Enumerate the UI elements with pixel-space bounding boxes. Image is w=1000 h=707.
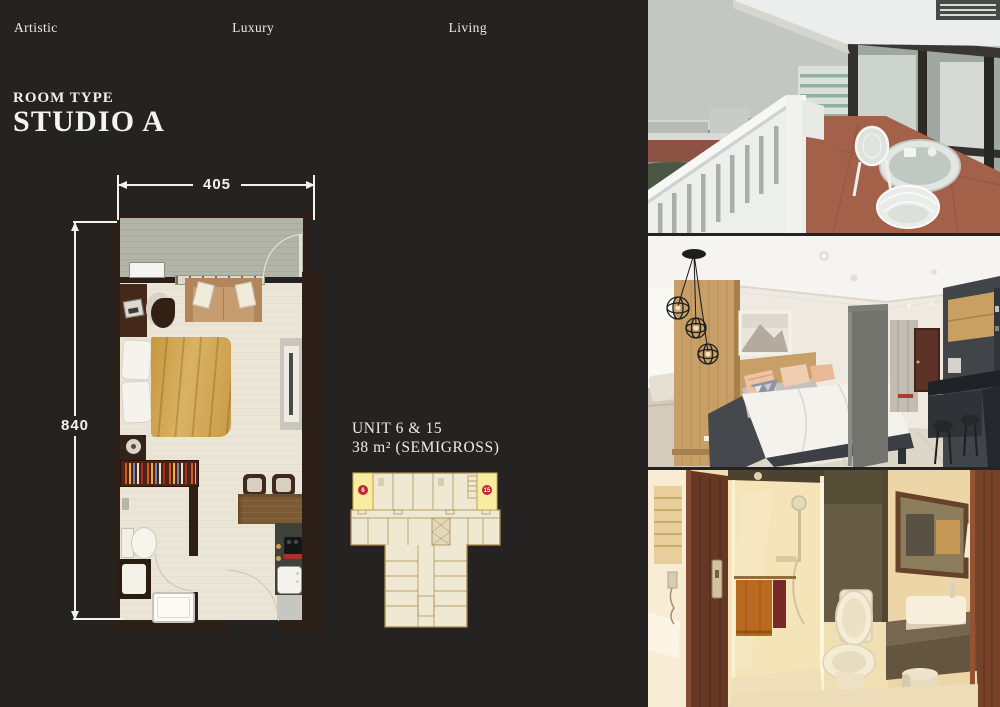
highlighted-unit-6: 6: [353, 473, 373, 510]
wardrobe-column: [848, 304, 888, 467]
wardrobe: [120, 460, 199, 487]
unit-badge: 15: [484, 488, 491, 494]
wall-bottom-right: [278, 620, 323, 632]
floor-plan: [113, 212, 323, 632]
tagline-living: Living: [449, 20, 487, 36]
photo-bathroom: [648, 470, 1000, 707]
tv-console: [280, 338, 302, 430]
unit-area: 38 m² (SEMIGROSS): [352, 438, 499, 457]
elevator-core: [432, 518, 450, 545]
wall-top: [113, 212, 317, 218]
highlighted-unit-15: 15: [477, 473, 497, 510]
wall-balcony-right: [303, 212, 310, 277]
tagline-luxury: Luxury: [232, 20, 274, 36]
door-mat: [898, 394, 913, 398]
title-block: ROOM TYPE STUDIO A: [13, 90, 165, 137]
wall-bathroom: [189, 485, 198, 556]
tagline-row: Artistic Luxury Living: [14, 20, 487, 36]
wire-chair-front: [877, 186, 939, 228]
stove: [284, 537, 302, 558]
brochure-page: { "page": { "background": "#252322", "te…: [0, 0, 1000, 707]
stove-knob: [276, 556, 281, 561]
kitchen-sink: [277, 566, 302, 594]
balcony-door-leaf: [299, 234, 302, 277]
bathroom-vanity: [118, 559, 151, 599]
bed-cover: [151, 337, 231, 437]
sofa: [185, 278, 262, 322]
photo-balcony-city-view: [648, 0, 1000, 233]
bed-pillow: [121, 380, 152, 423]
unit-info: UNIT 6 & 15 38 m² (SEMIGROSS): [352, 419, 499, 457]
unit-numbers: UNIT 6 & 15: [352, 419, 499, 438]
toilet-bowl: [131, 527, 157, 559]
dining-chair: [272, 474, 295, 496]
key-plan: 6 15: [348, 466, 502, 637]
tagline-artistic: Artistic: [14, 20, 58, 36]
wall-artwork: [740, 312, 790, 354]
washing-machine: [120, 435, 146, 460]
dim-width-label: 405: [193, 176, 241, 194]
laptop: [123, 298, 145, 318]
bed-pillow: [121, 339, 152, 380]
toilet-paper-holder: [122, 498, 129, 510]
refrigerator: [277, 595, 302, 620]
wall-right: [302, 272, 323, 632]
desk-chair-seat: [151, 298, 175, 328]
dining-table: [238, 494, 302, 524]
dim-height-label: 840: [53, 416, 97, 436]
dining-chair: [243, 474, 266, 496]
shower-tray: [152, 592, 195, 623]
bathroom-sink: [122, 564, 146, 594]
stove-knob: [276, 544, 281, 549]
ac-unit: [129, 262, 165, 278]
page-title: STUDIO A: [13, 107, 165, 137]
photo-bedroom: [648, 236, 1000, 467]
